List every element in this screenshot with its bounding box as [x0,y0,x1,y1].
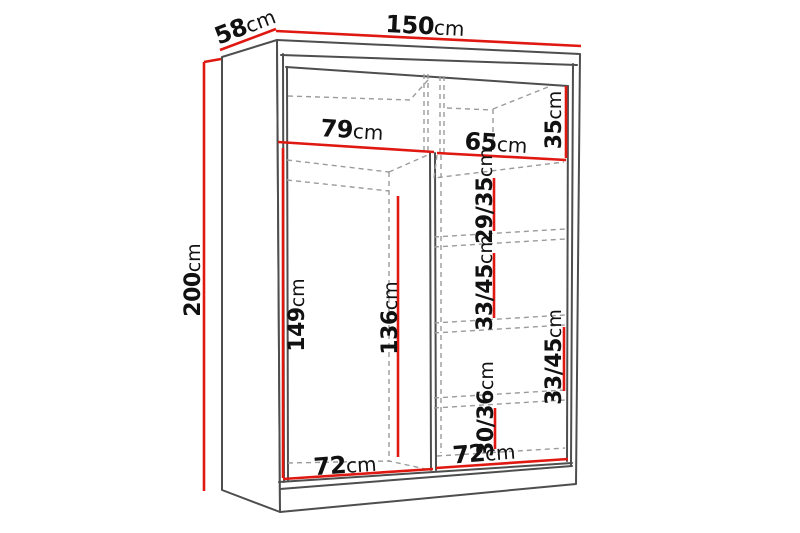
label-left-bottom-width: 72cm [313,449,378,481]
wardrobe-dimension-diagram: 58cm 150cm 200cm 79cm 65cm 35cm 29/35cm … [0,0,800,533]
diagram-canvas: 58cm 150cm 200cm 79cm 65cm 35cm 29/35cm … [0,0,800,533]
center-divider-right-edge [435,153,436,470]
label-hanging-height-front: 149cm [285,278,310,351]
cabinet-structure [222,40,580,512]
label-height: 200cm [181,243,206,316]
label-shelf-gap-1: 29/35cm [473,148,498,244]
interior-left-edge [287,67,288,481]
label-shelf-gap-3: 33/45cm [542,309,567,405]
label-hanging-height-back: 136cm [378,281,403,354]
label-shelf-gap-2: 33/45cm [473,235,498,331]
dim-tick-height-200 [204,59,221,62]
label-width: 150cm [385,10,465,42]
label-top-shelf-height: 35cm [542,91,567,150]
center-divider-left-edge [430,153,431,470]
side-panel [222,40,280,512]
